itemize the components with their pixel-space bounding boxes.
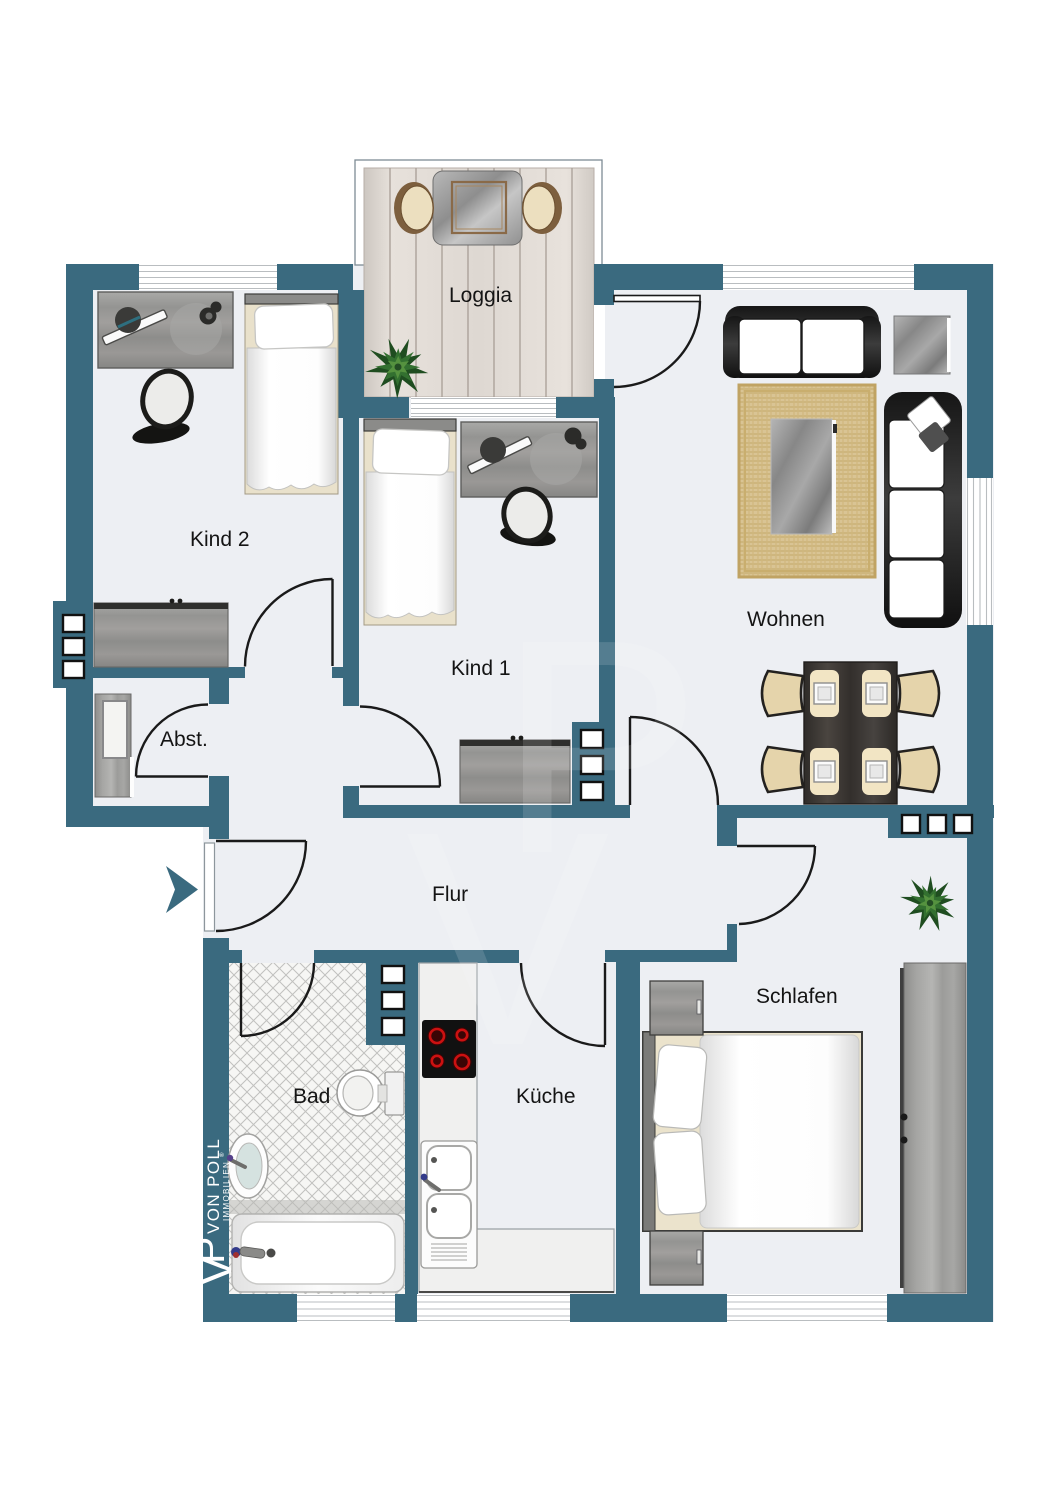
- svg-text:Loggia: Loggia: [449, 284, 512, 307]
- svg-text:P: P: [187, 1237, 233, 1264]
- svg-text:P: P: [498, 576, 701, 917]
- svg-text:®: ®: [219, 1152, 226, 1157]
- svg-text:Abst.: Abst.: [160, 728, 208, 751]
- svg-text:VON POLL: VON POLL: [204, 1138, 223, 1234]
- svg-text:Wohnen: Wohnen: [747, 608, 825, 631]
- svg-text:Schlafen: Schlafen: [756, 985, 838, 1008]
- svg-text:IMMOBILIEN: IMMOBILIEN: [222, 1161, 231, 1221]
- svg-text:Kind 1: Kind 1: [451, 657, 511, 680]
- svg-text:Bad: Bad: [293, 1085, 330, 1108]
- svg-text:Küche: Küche: [516, 1085, 576, 1108]
- svg-text:Flur: Flur: [432, 883, 468, 906]
- svg-text:Kind 2: Kind 2: [190, 528, 250, 551]
